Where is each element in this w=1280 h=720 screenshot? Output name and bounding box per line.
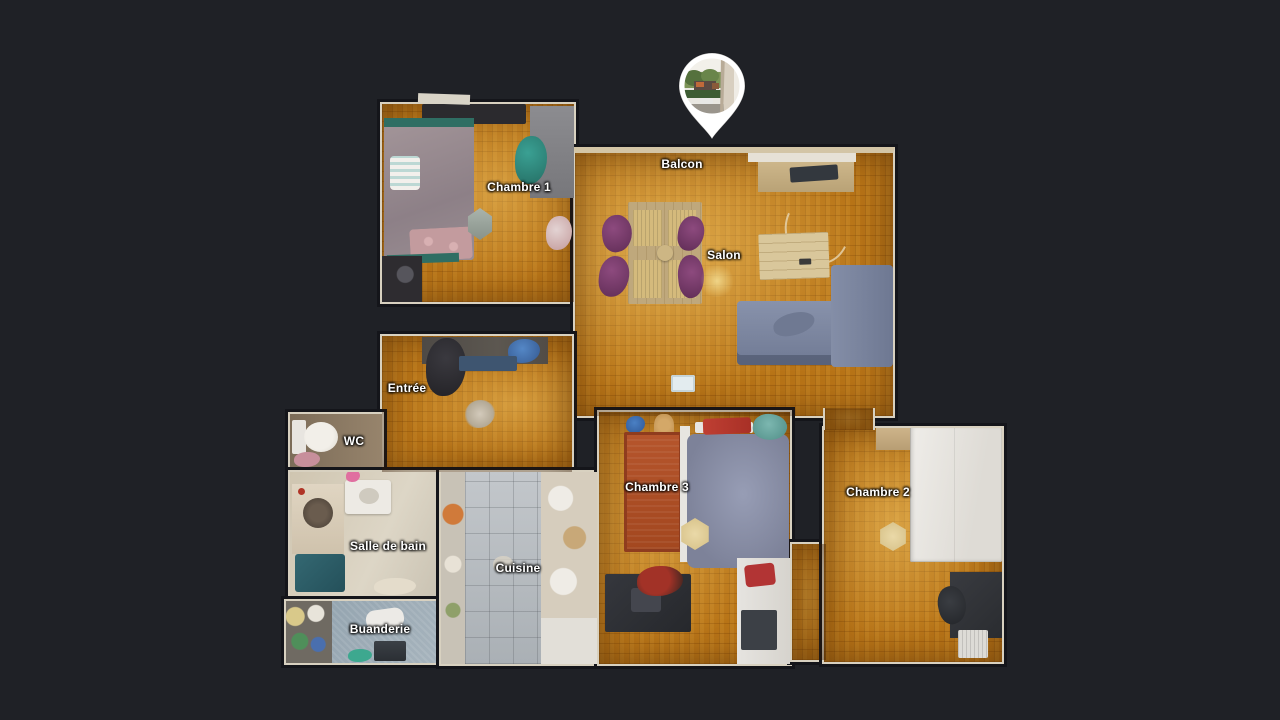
red-cloth: [744, 562, 776, 587]
room-label-salon: Salon: [707, 248, 741, 262]
room-label-chambre-1: Chambre 1: [487, 180, 551, 194]
bath-rug: [374, 578, 416, 595]
balcony-shelf: [748, 153, 856, 162]
room-wc[interactable]: [288, 412, 384, 472]
red-pillow: [703, 417, 752, 435]
room-label-entree: Entrée: [388, 381, 427, 395]
room-label-balcon: Balcon: [661, 157, 702, 171]
room-label-buanderie: Buanderie: [350, 622, 410, 636]
coffee-table: [758, 232, 830, 280]
scan-glow: [699, 265, 735, 297]
kitchen-counter-right: [541, 472, 597, 618]
bath-mat: [294, 452, 320, 467]
bed: [910, 426, 1002, 562]
room-chambre-1[interactable]: [380, 102, 576, 304]
headboard-shelf: [876, 428, 912, 450]
dark-box: [741, 610, 777, 650]
washer-drum: [303, 498, 333, 528]
room-label-chambre-2: Chambre 2: [846, 485, 910, 499]
room-salle-de-bain[interactable]: [288, 470, 441, 601]
table-centerpiece: [657, 245, 673, 261]
dollhouse-view[interactable]: Chambre 1 Balcon Salon Entrée WC Chambre…: [0, 0, 1280, 720]
room-entree[interactable]: [380, 334, 574, 474]
blue-bin: [626, 416, 645, 433]
wall-fragment: [418, 93, 470, 105]
mattress-seam: [954, 426, 955, 562]
kitchen-cabinet: [541, 618, 597, 664]
placemat: [633, 210, 662, 246]
pillow: [390, 156, 420, 190]
room-label-wc: WC: [344, 434, 364, 448]
laundry-basket: [348, 649, 372, 662]
remote: [799, 258, 811, 264]
bathtub: [295, 554, 345, 592]
scan-hole: [878, 522, 908, 551]
sink-basin: [359, 488, 379, 504]
bags: [546, 216, 572, 250]
location-pin-icon: [672, 48, 752, 142]
placemat: [633, 260, 662, 298]
room-salon[interactable]: [573, 147, 895, 418]
balcony-pano-pin[interactable]: [672, 48, 752, 142]
room-label-salle-de-bain: Salle de bain: [350, 539, 426, 553]
floor-clutter: [380, 256, 422, 302]
room-label-chambre-3: Chambre 3: [625, 480, 689, 494]
room-chambre-2[interactable]: [822, 426, 1004, 664]
kitchen-counter-left: [441, 472, 465, 664]
doormat: [459, 356, 517, 371]
floor-vent: [671, 375, 695, 392]
scan-spot: [465, 400, 495, 428]
laundry-clutter: [286, 601, 332, 663]
sink: [345, 480, 391, 514]
room-label-cuisine: Cuisine: [496, 561, 541, 575]
wardrobe: [737, 558, 791, 664]
room-chambre-3[interactable]: [597, 410, 792, 666]
doorway-corridor[interactable]: [823, 408, 875, 430]
sofa-chaise: [831, 265, 893, 367]
bed-headboard: [384, 118, 474, 127]
washer-button: [298, 488, 305, 495]
toilet: [304, 422, 338, 452]
washer: [292, 484, 344, 554]
bed: [687, 434, 789, 568]
washing-machine: [374, 641, 406, 661]
room-chambre-2-alcove[interactable]: [790, 542, 826, 662]
printer: [958, 630, 988, 658]
chair: [597, 255, 631, 299]
